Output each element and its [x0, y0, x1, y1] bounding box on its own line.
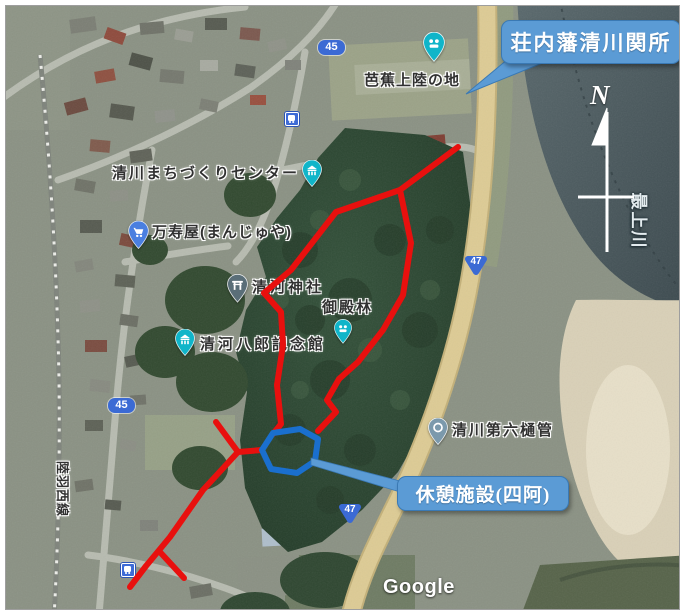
google-logo[interactable]: Google	[383, 576, 455, 599]
route-45-shield: 45	[108, 398, 135, 413]
bus-stop-icon[interactable]	[121, 563, 135, 577]
museum-pin-icon	[175, 329, 195, 356]
map-viewport: 芭蕉上陸の地 清川まちづくりセンター 万寿屋(まんじゅや) 清河神社 御殿林 清…	[5, 5, 680, 610]
pin-hachiro-museum[interactable]	[175, 329, 195, 356]
callout-checkpoint: 荘内藩清川関所	[501, 20, 680, 64]
attraction-pin-icon	[423, 32, 445, 62]
pin-dairoku-sluice[interactable]	[428, 418, 448, 445]
label-basho-landing[interactable]: 芭蕉上陸の地	[364, 69, 460, 90]
callout-rest-facility: 休憩施設(四阿)	[397, 476, 569, 511]
pin-gotenbayashi[interactable]	[334, 319, 352, 344]
attraction-pin-icon	[334, 319, 352, 344]
pin-manjuya[interactable]	[128, 221, 149, 249]
label-hachiro-museum[interactable]: 清河八郎記念館	[200, 333, 326, 354]
label-gotenbayashi[interactable]: 御殿林	[322, 296, 373, 317]
label-dairoku-sluice[interactable]: 清川第六樋管	[452, 419, 554, 440]
shrine-torii-pin-icon	[227, 274, 248, 303]
route-45-shield: 45	[318, 40, 345, 55]
label-machizukuri-center[interactable]: 清川まちづくりセンター	[112, 162, 299, 183]
label-rikuu-west-line: 陸羽西線	[38, 463, 90, 515]
label-kiyokawa-shrine[interactable]: 清河神社	[252, 276, 324, 297]
shopping-pin-icon	[128, 221, 149, 249]
pin-basho-landing[interactable]	[423, 32, 445, 62]
compass-north-label: N	[590, 80, 610, 111]
label-mogami-river: 最上川	[613, 193, 669, 249]
place-pin-icon	[428, 418, 448, 445]
pin-machizukuri-center[interactable]	[302, 160, 322, 187]
route-47-shield: 47	[338, 502, 362, 524]
label-manjuya[interactable]: 万寿屋(まんじゅや)	[152, 221, 292, 242]
map-world: 芭蕉上陸の地 清川まちづくりセンター 万寿屋(まんじゅや) 清河神社 御殿林 清…	[5, 5, 680, 610]
poi-layer: 芭蕉上陸の地 清川まちづくりセンター 万寿屋(まんじゅや) 清河神社 御殿林 清…	[5, 5, 680, 610]
museum-pin-icon	[302, 160, 322, 187]
bus-stop-icon[interactable]	[285, 112, 299, 126]
route-47-shield: 47	[464, 254, 488, 276]
screenshot-frame: 芭蕉上陸の地 清川まちづくりセンター 万寿屋(まんじゅや) 清河神社 御殿林 清…	[0, 0, 685, 615]
pin-kiyokawa-shrine[interactable]	[227, 274, 248, 303]
